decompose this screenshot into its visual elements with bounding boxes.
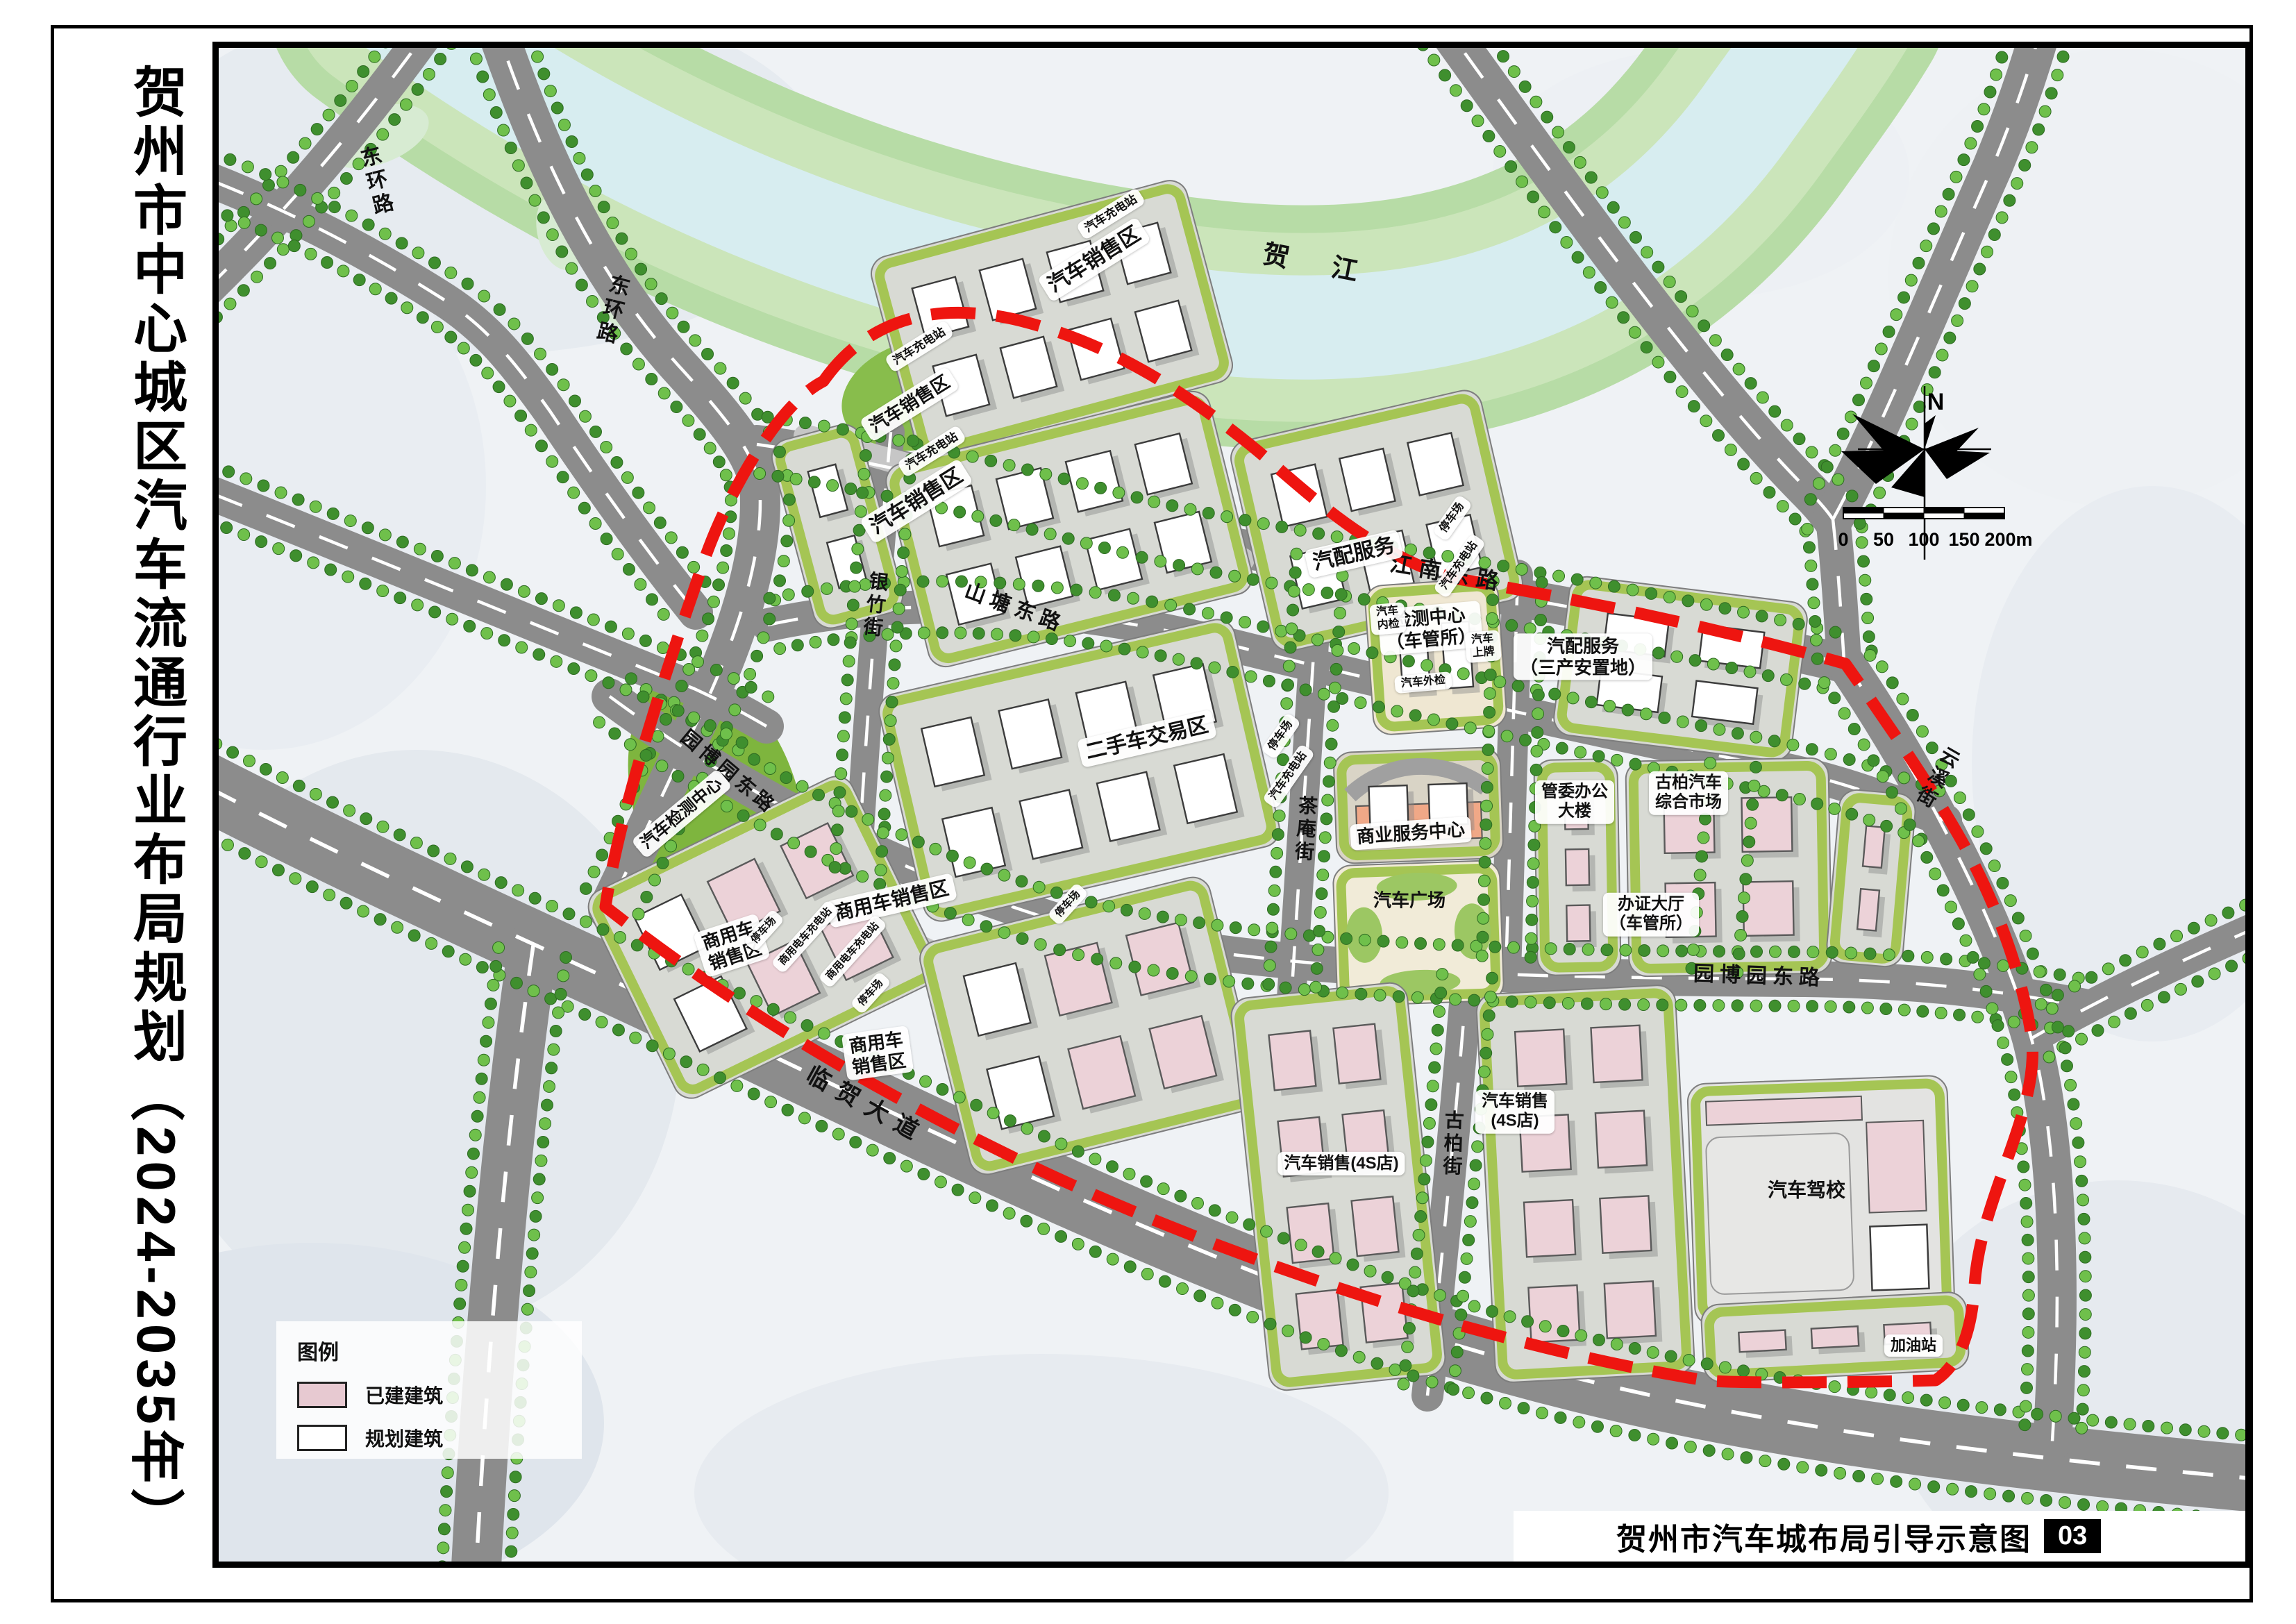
page: { "title": {"main":"贺州市中心城区汽车流通行业布局规划","… <box>0 0 2296 1624</box>
label-auto-plaza: 汽车广场 <box>1373 890 1446 912</box>
label-autoparts-resettlement: 汽配服务 （三产安置地） <box>1514 633 1652 680</box>
map-frame: N050100150200m 东环路东环路贺 江江南东路山塘东路银竹街茶庵街古柏… <box>212 42 2252 1568</box>
road-label-yuanboyuan-2: 园博园东路 <box>1693 962 1825 991</box>
page-title-year: （2024-2035年） <box>126 1067 187 1547</box>
legend-item-built: 已建建筑 <box>297 1381 561 1409</box>
label-driving-school: 汽车驾校 <box>1768 1178 1845 1201</box>
legend-title: 图例 <box>297 1335 561 1366</box>
planned-building-label: 规划建筑 <box>365 1424 443 1452</box>
built-building-label: 已建建筑 <box>365 1381 443 1409</box>
river-label-hejiang: 贺 江 <box>1260 239 1378 291</box>
label-parking-4: 停车场 <box>850 971 891 1015</box>
built-building-swatch <box>297 1382 347 1408</box>
label-outer-check: 汽车外检 <box>1394 671 1452 694</box>
label-ev-charging-1: 商用电车充电站 <box>771 899 840 973</box>
label-usedcar-trading: 二手车交易区 <box>1077 710 1217 769</box>
road-label-gubai-street: 古柏街 <box>1440 1110 1465 1179</box>
label-gas-station: 加油站 <box>1884 1334 1943 1357</box>
label-commercial-vehicle-sales-2: 商用车销售区 <box>826 873 957 928</box>
label-parking-5: 停车场 <box>1047 882 1089 926</box>
label-business-service-center: 商业服务中心 <box>1350 817 1472 851</box>
label-parking-1: 停车场 <box>1432 494 1473 542</box>
caption-bar: 贺州市汽车城布局引导示意图 03 <box>1514 1511 2245 1562</box>
label-commercial-vehicle-sales-3: 商用车 销售区 <box>841 1026 914 1081</box>
label-4s-sales-2: 汽车销售 (4S店) <box>1475 1090 1555 1134</box>
label-4s-sales-1: 汽车销售(4S店) <box>1277 1152 1405 1175</box>
label-auto-sales-2: 汽车销售区 <box>860 366 960 442</box>
caption-number-badge: 03 <box>2044 1519 2101 1553</box>
label-plate-register: 汽车 上牌 <box>1464 630 1502 663</box>
label-license-hall: 办证大厅 （车管所） <box>1603 893 1699 937</box>
page-title-main: 贺州市中心城区汽车流通行业布局规划 <box>126 64 187 1067</box>
label-admin-office-building: 管委办公 大楼 <box>1535 780 1614 824</box>
road-label-donghuan-north: 东环路 <box>590 271 632 348</box>
label-auto-inspection-center: 汽车检测中心 <box>631 769 732 859</box>
label-inner-check: 汽车 内检 <box>1369 602 1407 635</box>
label-charging-station-2: 汽车充电站 <box>884 320 954 374</box>
label-gubai-auto-market: 古柏汽车 综合市场 <box>1649 771 1728 815</box>
road-label-shantang-east: 山塘东路 <box>962 578 1069 637</box>
map-caption: 贺州市汽车城布局引导示意图 <box>1616 1514 2031 1559</box>
road-label-yunxi-street: 云溪街 <box>1910 742 1964 813</box>
legend-panel: 图例 已建建筑 规划建筑 <box>276 1321 582 1459</box>
road-label-donghuan-west: 东环路 <box>354 144 396 220</box>
road-label-chaan-street: 茶庵街 <box>1291 794 1319 864</box>
planned-building-swatch <box>297 1425 347 1451</box>
legend-item-planned: 规划建筑 <box>297 1424 561 1452</box>
road-label-yinzhu-street: 银竹街 <box>860 570 891 641</box>
page-title: 贺州市中心城区汽车流通行业布局规划（2024-2035年） <box>129 64 183 1584</box>
